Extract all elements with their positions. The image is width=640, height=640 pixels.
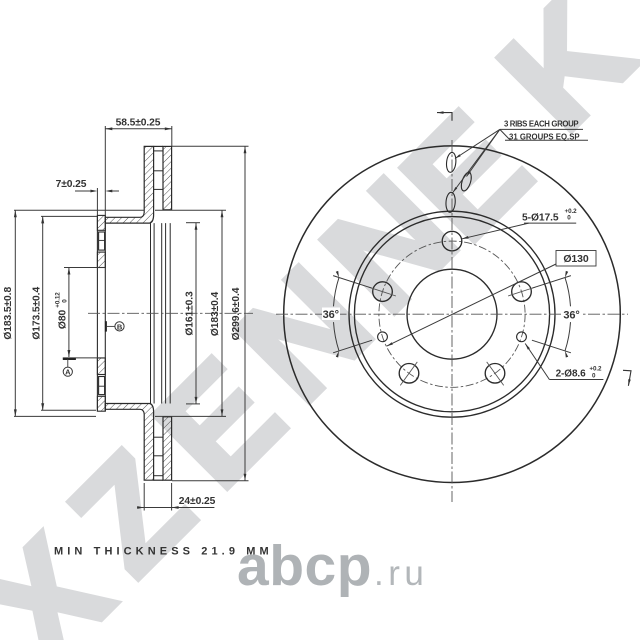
svg-text:B: B [117, 322, 123, 331]
svg-text:+0.2: +0.2 [589, 366, 602, 373]
svg-text:7±0.25: 7±0.25 [56, 179, 87, 190]
svg-text:Ø299.6±0.4: Ø299.6±0.4 [231, 287, 242, 340]
svg-text:5-Ø17.5: 5-Ø17.5 [522, 213, 559, 224]
svg-text:Ø183±0.4: Ø183±0.4 [210, 291, 221, 336]
svg-text:3 RIBS EACH GROUP: 3 RIBS EACH GROUP [504, 120, 578, 129]
svg-text:Ø173.5±0.4: Ø173.5±0.4 [32, 287, 43, 340]
svg-text:.ru: .ru [374, 554, 428, 593]
svg-text:2-Ø8.6: 2-Ø8.6 [556, 369, 587, 380]
svg-text:31 GROUPS EQ.SP: 31 GROUPS EQ.SP [509, 133, 580, 142]
svg-text:58.5±0.25: 58.5±0.25 [116, 118, 161, 129]
svg-text:36°: 36° [323, 309, 339, 321]
svg-text:36°: 36° [563, 310, 579, 322]
svg-text:Ø161±0.3: Ø161±0.3 [185, 291, 196, 336]
svg-text:Ø183.5±0.8: Ø183.5±0.8 [3, 287, 14, 340]
svg-text:0: 0 [567, 214, 571, 221]
svg-text:0: 0 [592, 373, 596, 380]
svg-text:Ø80: Ø80 [58, 310, 69, 330]
svg-text:A: A [65, 368, 71, 377]
svg-text:MIN THICKNESS 21.9 MM: MIN THICKNESS 21.9 MM [54, 546, 273, 558]
svg-text:0: 0 [62, 299, 69, 303]
svg-text:abcp: abcp [237, 534, 372, 598]
svg-text:24±0.25: 24±0.25 [179, 496, 216, 507]
svg-text:+0.12: +0.12 [55, 292, 62, 308]
svg-text:Ø130: Ø130 [563, 253, 589, 265]
